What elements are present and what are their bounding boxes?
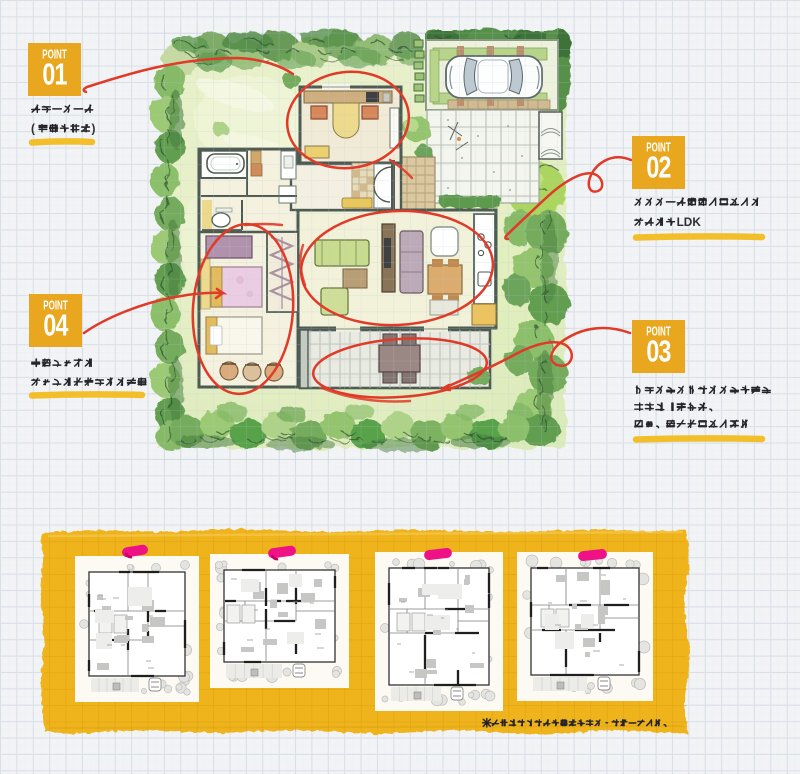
svg-text:): ) (92, 121, 96, 135)
svg-text:(: ( (31, 121, 35, 135)
svg-text:LDK: LDK (677, 215, 702, 229)
